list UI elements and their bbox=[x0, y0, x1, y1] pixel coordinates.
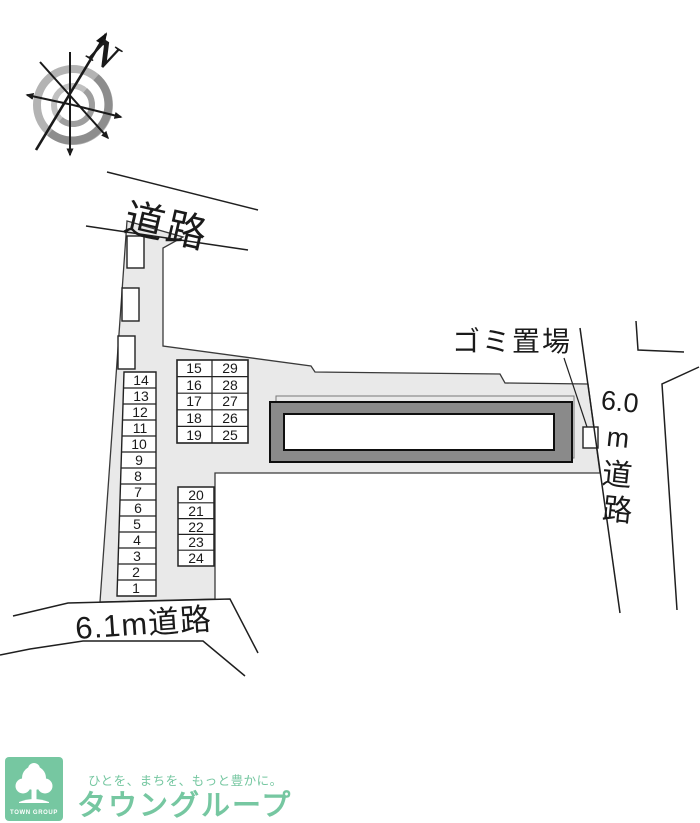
garbage-area-label: ゴミ置場 bbox=[452, 326, 572, 357]
site-plan-drawing: N 14 13 12 11 10 9 8 7 6 5 4 3 2 1 bbox=[0, 0, 700, 823]
right-road-width: 6.0 bbox=[600, 385, 640, 419]
space-number: 7 bbox=[134, 484, 142, 500]
space-number: 17 bbox=[186, 393, 202, 409]
parking-grid-center: 15 16 17 18 19 29 28 27 26 25 bbox=[177, 360, 248, 443]
bottom-road-label: 6.1m道路 bbox=[74, 602, 213, 646]
compass-rose: N bbox=[27, 28, 128, 155]
corner-mark bbox=[636, 321, 684, 352]
space-number: 4 bbox=[133, 532, 141, 548]
space-number: 26 bbox=[222, 410, 238, 426]
right-road-unit: m bbox=[605, 422, 631, 454]
right-road-kanji: 道 bbox=[600, 458, 633, 494]
space-number: 15 bbox=[186, 360, 202, 376]
space-number: 22 bbox=[188, 519, 204, 535]
space-number: 24 bbox=[188, 550, 204, 566]
space-number: 1 bbox=[132, 580, 140, 596]
space-number: 18 bbox=[186, 410, 202, 426]
space-number: 23 bbox=[188, 534, 204, 550]
space-number: 6 bbox=[134, 500, 142, 516]
space-number: 29 bbox=[222, 360, 238, 376]
space-number: 21 bbox=[188, 503, 204, 519]
space-number: 16 bbox=[186, 377, 202, 393]
footer-tagline: ひとを、まちを、もっと豊かに。 bbox=[88, 774, 283, 788]
footer: TOWN GROUP ひとを、まちを、もっと豊かに。 タウングループ bbox=[5, 757, 292, 822]
right-road-edge bbox=[662, 367, 699, 610]
space-number: 14 bbox=[133, 372, 149, 388]
right-road-kanji: 路 bbox=[601, 493, 634, 529]
space-number: 3 bbox=[133, 548, 141, 564]
small-box bbox=[118, 336, 135, 369]
space-number: 5 bbox=[133, 516, 141, 532]
space-number: 12 bbox=[132, 404, 148, 420]
space-number: 19 bbox=[186, 427, 202, 443]
space-number: 8 bbox=[134, 468, 142, 484]
space-number: 13 bbox=[133, 388, 149, 404]
space-number: 27 bbox=[222, 393, 238, 409]
building-inner bbox=[284, 414, 554, 450]
parking-column-left: 14 13 12 11 10 9 8 7 6 5 4 3 2 1 bbox=[117, 372, 156, 596]
space-number: 20 bbox=[188, 487, 204, 503]
space-number: 25 bbox=[222, 427, 238, 443]
compass-inner-ring-shade bbox=[61, 90, 92, 124]
parking-column-lower: 20 21 22 23 24 bbox=[178, 487, 214, 566]
space-number: 11 bbox=[133, 420, 148, 436]
small-box bbox=[122, 288, 139, 321]
logo-caption: TOWN GROUP bbox=[10, 810, 58, 816]
space-number: 9 bbox=[135, 452, 143, 468]
building bbox=[270, 396, 574, 462]
site-plan-page: N 14 13 12 11 10 9 8 7 6 5 4 3 2 1 bbox=[0, 0, 700, 823]
space-number: 28 bbox=[222, 377, 238, 393]
space-number: 2 bbox=[132, 564, 140, 580]
footer-brand: タウングループ bbox=[77, 789, 292, 822]
space-number: 10 bbox=[131, 436, 147, 452]
bottom-road-edge bbox=[0, 641, 245, 676]
